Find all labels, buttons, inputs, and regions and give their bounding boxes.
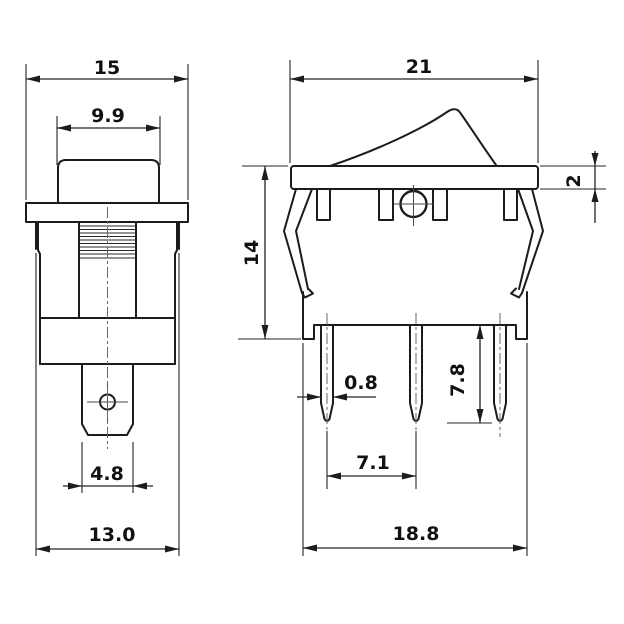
front-body-left-edge: [38, 222, 40, 364]
side-view: 21 2 14 0.8: [238, 56, 606, 556]
dim-label-0-8: 0.8: [344, 372, 378, 394]
dim-front-button-width: 9.9: [57, 105, 160, 165]
pin-3: [494, 313, 506, 437]
dim-pin-thickness: 0.8: [297, 372, 378, 401]
dim-label-18-8: 18.8: [393, 523, 440, 545]
dim-front-terminal-width: 4.8: [63, 442, 153, 493]
dim-side-overall-width: 21: [290, 56, 538, 163]
plate-stub-1: [317, 189, 330, 220]
dim-label-2: 2: [563, 174, 585, 187]
dim-side-bezel-thickness: 2: [540, 151, 606, 223]
button-cap: [58, 160, 159, 203]
dim-label-21: 21: [406, 56, 432, 78]
dim-label-7-1: 7.1: [356, 452, 390, 474]
plate-stub-3: [433, 189, 447, 220]
dim-label-13-0: 13.0: [89, 524, 136, 546]
rocker-actuator: [330, 109, 496, 166]
drawing-canvas: 15 9.9 4.8 13.0: [0, 0, 624, 624]
side-bezel-plate: [291, 166, 538, 189]
dim-side-height: 14: [238, 166, 301, 339]
plate-stub-4: [504, 189, 517, 220]
dim-pin-length: 7.8: [447, 325, 492, 423]
dim-label-15: 15: [94, 57, 120, 79]
pin-1: [321, 313, 333, 437]
dim-label-4-8: 4.8: [90, 463, 124, 485]
pin-2: [410, 313, 422, 437]
front-view: 15 9.9 4.8 13.0: [26, 57, 188, 556]
front-body-right-edge: [175, 222, 177, 364]
dim-pin-spacing: 7.1: [327, 431, 416, 489]
switch-dimension-drawing: 15 9.9 4.8 13.0: [0, 0, 624, 624]
dim-label-7-8: 7.8: [447, 363, 469, 397]
plate-stub-2: [379, 189, 393, 220]
spring-clip-right: [511, 189, 543, 298]
spring-clip-left: [284, 189, 313, 298]
dim-label-9-9: 9.9: [91, 105, 125, 127]
dim-label-14: 14: [241, 240, 263, 266]
